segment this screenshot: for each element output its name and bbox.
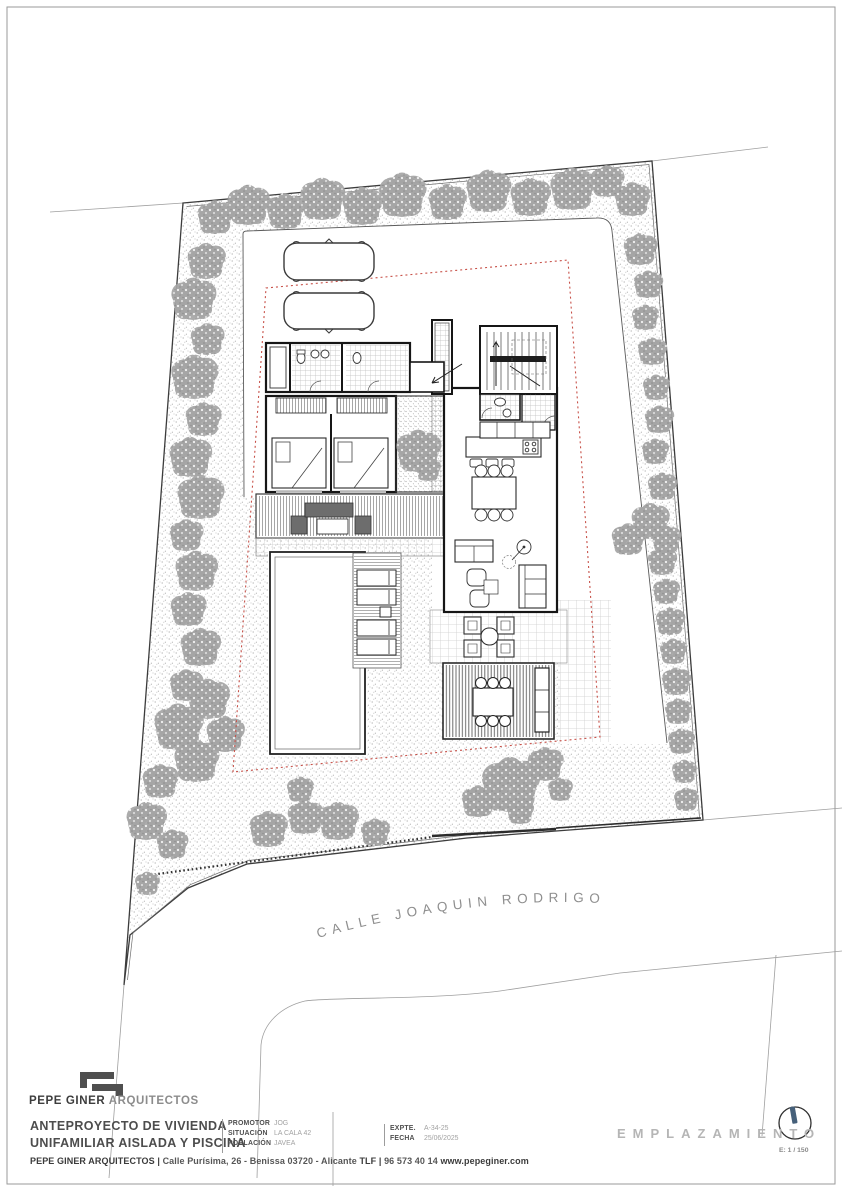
- dining-table: [472, 465, 516, 521]
- sink: [311, 350, 319, 358]
- field-value: LA CALA 42: [274, 1129, 311, 1139]
- project-fields: PROMOTORJOG SITUACIÓNLA CALA 42 POBLACIÓ…: [228, 1119, 311, 1148]
- sun-lounger: [357, 620, 396, 636]
- field-value: JAVEA: [274, 1139, 295, 1149]
- wardrobe: [337, 398, 387, 413]
- car-1: [284, 243, 374, 280]
- pergola: [443, 663, 554, 739]
- street-label: CALLE JOAQUIN RODRIGO: [315, 890, 606, 941]
- wc: [480, 394, 520, 420]
- staircase: [480, 326, 557, 394]
- sun-lounger: [357, 639, 396, 655]
- terrace: [430, 610, 567, 663]
- field-label: PROMOTOR: [228, 1119, 274, 1129]
- footer-contact: PEPE GINER ARQUITECTOS | Calle Purísima,…: [30, 1156, 529, 1166]
- scale-label: E: 1 / 150: [779, 1147, 808, 1154]
- round-table: [481, 628, 498, 645]
- site-plan-drawing: CALLE JOAQUIN RODRIGO: [0, 0, 842, 1191]
- sheet-page: CALLE JOAQUIN RODRIGO PEPE GINER ARQUITE…: [0, 0, 842, 1191]
- field-value: JOG: [274, 1119, 288, 1129]
- sheet-title: EMPLAZAMIENTO: [617, 1126, 821, 1141]
- bed: [334, 438, 388, 488]
- bed: [272, 438, 326, 488]
- field-label: SITUACIÓN: [228, 1129, 274, 1139]
- wardrobe: [276, 398, 326, 413]
- field-value: 25/06/2025: [424, 1134, 459, 1144]
- divider: [384, 1124, 385, 1146]
- divider: [222, 1119, 223, 1153]
- corridor: [410, 362, 444, 392]
- project-title: ANTEPROYECTO DE VIVIENDA UNIFAMILIAR AIS…: [30, 1118, 246, 1152]
- bbq-bench: [535, 668, 549, 732]
- field-label: POBLACIÓN: [228, 1139, 274, 1149]
- outdoor-dining-table: [473, 688, 513, 716]
- pepe-giner-logo: [70, 1066, 200, 1096]
- field-label: FECHA: [390, 1134, 424, 1144]
- toilet: [353, 353, 361, 364]
- field-value: A-34-25: [424, 1124, 449, 1134]
- field-label: EXPTE.: [390, 1124, 424, 1134]
- brand-name: PEPE GINER ARQUITECTOS: [29, 1095, 199, 1107]
- expedient-fields: EXPTE.A-34-25 FECHA25/06/2025: [390, 1124, 459, 1144]
- bathtub: [270, 347, 286, 388]
- sink: [321, 350, 329, 358]
